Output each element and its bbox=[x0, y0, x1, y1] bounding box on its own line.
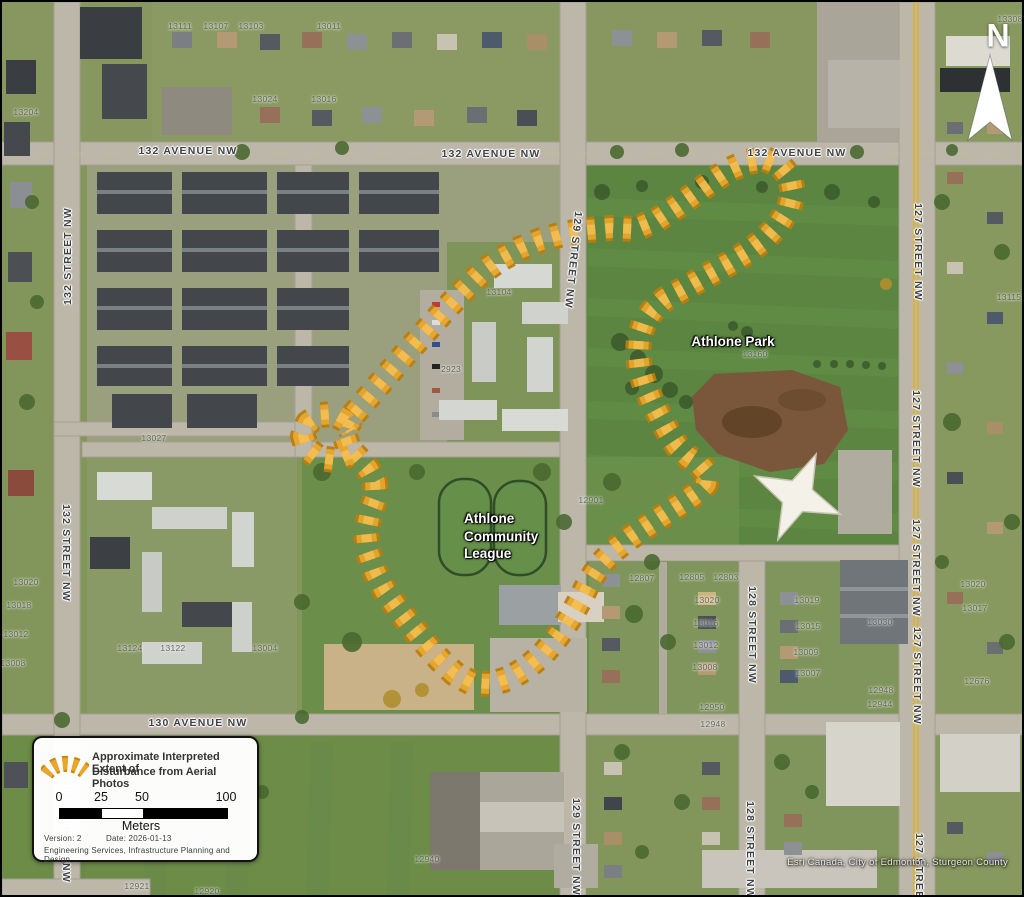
scale-tick-50: 50 bbox=[135, 790, 149, 804]
attribution-text: Esri Canada, City of Edmonton, Sturgeon … bbox=[787, 857, 1008, 868]
north-arrow: N bbox=[952, 10, 1024, 152]
scale-tick-100: 100 bbox=[216, 790, 237, 804]
date-text: Date: 2026-01-13 bbox=[106, 834, 171, 843]
north-label: N bbox=[986, 18, 1009, 55]
department-text: Engineering Services, Infrastructure Pla… bbox=[44, 846, 257, 864]
scale-tick-0: 0 bbox=[56, 790, 63, 804]
version-text: Version: 2 bbox=[44, 834, 82, 843]
legend-title-line2: Disturbance from Aerial Photos bbox=[92, 766, 252, 790]
scale-bar bbox=[59, 808, 228, 819]
legend-panel: Approximate Interpreted Extent of Distur… bbox=[32, 736, 259, 862]
scale-unit-label: Meters bbox=[122, 819, 160, 833]
map-canvas: 132 AVENUE NW132 AVENUE NW132 AVENUE NW1… bbox=[0, 0, 1024, 897]
scale-tick-25: 25 bbox=[94, 790, 108, 804]
disturbance-extent-symbol-icon bbox=[41, 752, 89, 784]
